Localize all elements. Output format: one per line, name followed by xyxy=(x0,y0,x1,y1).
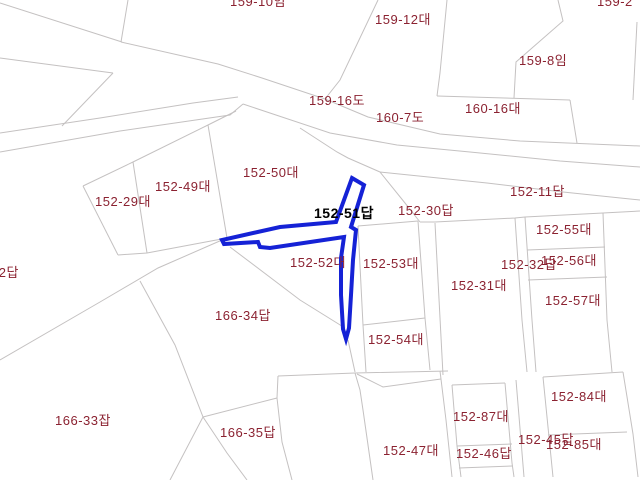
parcel-label: 152-50대 xyxy=(243,165,299,180)
parcel-boundary-line xyxy=(437,96,570,100)
cadastral-map-canvas[interactable]: 159-10임159-12대159-2159-8임159-16도160-7도16… xyxy=(0,0,640,480)
parcel-label: 166-34답 xyxy=(215,308,271,323)
parcel-boundary-line xyxy=(525,217,536,372)
parcel-boundary-line xyxy=(516,380,524,477)
parcel-boundary-line xyxy=(243,104,640,167)
parcel-boundary-line xyxy=(83,111,236,186)
parcel-label: 159-10임 xyxy=(230,0,286,9)
parcel-boundary-line xyxy=(527,247,605,250)
parcel-boundary-line xyxy=(515,218,527,372)
parcel-boundary-line xyxy=(203,398,277,417)
parcel-boundaries-layer xyxy=(0,0,640,480)
parcel-label: 152-87대 xyxy=(453,409,509,424)
parcel-boundary-line xyxy=(528,277,607,280)
parcel-boundary-line xyxy=(0,3,122,42)
parcel-boundary-line xyxy=(437,0,447,96)
parcel-boundary-line xyxy=(603,213,612,372)
parcel-label: 160-7도 xyxy=(376,110,424,125)
parcel-label: 159-2 xyxy=(597,0,633,9)
parcel-label: 159-12대 xyxy=(375,12,431,27)
parcel-boundary-line xyxy=(543,372,623,377)
parcel-label: 152-53대 xyxy=(363,256,419,271)
parcel-label: 159-8임 xyxy=(519,53,567,68)
parcel-boundary-line xyxy=(358,226,366,372)
parcel-boundary-line xyxy=(0,58,113,73)
parcel-label: 159-16도 xyxy=(309,93,365,108)
parcel-boundary-line xyxy=(121,0,128,42)
parcel-label: 152-47대 xyxy=(383,443,439,458)
parcel-boundary-line xyxy=(277,376,278,398)
parcel-boundary-line xyxy=(358,221,418,226)
parcel-boundary-line xyxy=(277,398,292,480)
parcel-label: 152-49대 xyxy=(155,179,211,194)
parcel-boundary-line xyxy=(121,42,325,99)
parcel-boundary-line xyxy=(440,371,452,477)
parcel-boundary-line xyxy=(570,100,577,143)
parcel-boundary-line xyxy=(418,221,430,370)
parcel-boundary-line xyxy=(623,372,638,477)
parcel-boundary-line xyxy=(118,238,227,255)
parcel-boundary-line xyxy=(514,0,563,98)
parcel-label: 152-29대 xyxy=(95,194,151,209)
parcel-label: 152-46답 xyxy=(456,446,512,461)
parcel-label: 166-35답 xyxy=(220,425,276,440)
parcel-boundary-line xyxy=(357,374,441,387)
parcel-boundary-line xyxy=(325,0,378,99)
highlighted-parcel-label: 152-51답 xyxy=(314,206,374,221)
parcel-label: 152-30답 xyxy=(398,203,454,218)
parcel-label: 160-16대 xyxy=(465,101,521,116)
parcel-boundary-line xyxy=(348,340,355,372)
parcel-label: 166-33잡 xyxy=(55,413,111,428)
parcel-label: 152-55대 xyxy=(536,222,592,237)
parcel-boundary-line xyxy=(278,371,448,376)
parcel-boundary-line xyxy=(452,385,461,477)
parcel-boundary-line xyxy=(0,240,222,360)
parcel-boundary-line xyxy=(505,383,514,477)
parcel-label: 152-84대 xyxy=(551,389,607,404)
parcel-boundary-line xyxy=(459,466,513,468)
parcel-boundary-line xyxy=(355,373,373,480)
parcel-label: 152-57대 xyxy=(545,293,601,308)
parcel-label: 152-54대 xyxy=(368,332,424,347)
parcel-label: 152-85대 xyxy=(546,437,602,452)
parcel-boundary-line xyxy=(140,281,203,480)
parcel-boundary-line xyxy=(452,383,505,385)
parcel-label: 152-52대 xyxy=(290,255,346,270)
parcel-label: 152-31대 xyxy=(451,278,507,293)
parcel-label: 152-11답 xyxy=(510,184,565,199)
parcel-label: 32답 xyxy=(0,265,19,280)
parcel-boundary-line xyxy=(435,223,443,375)
parcel-label: 152-56대 xyxy=(541,253,597,268)
parcel-boundary-line xyxy=(62,73,113,126)
parcel-boundary-line xyxy=(633,22,637,100)
parcel-boundary-line xyxy=(363,318,425,325)
